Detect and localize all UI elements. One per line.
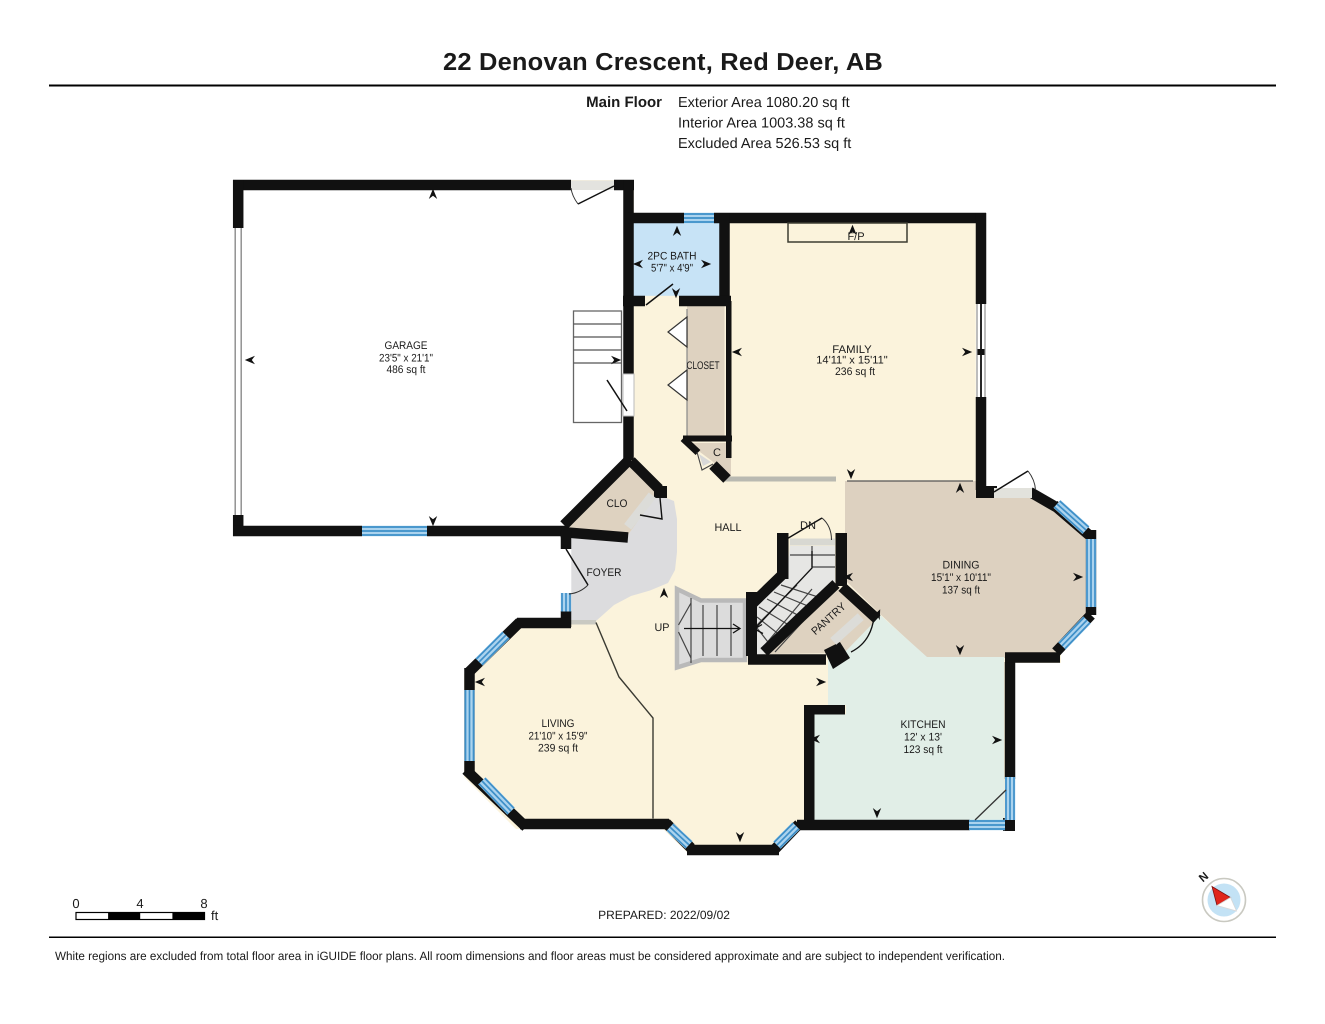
svg-text:N: N <box>1197 870 1211 885</box>
svg-text:Interior Area 1003.38 sq ft: Interior Area 1003.38 sq ft <box>678 116 845 132</box>
svg-text:UP: UP <box>655 622 670 634</box>
svg-text:12' x 13': 12' x 13' <box>904 732 942 744</box>
svg-text:CLO: CLO <box>607 498 628 510</box>
svg-text:21'10" x 15'9": 21'10" x 15'9" <box>529 731 588 743</box>
svg-text:486 sq ft: 486 sq ft <box>387 364 426 376</box>
svg-text:FOYER: FOYER <box>587 567 622 579</box>
svg-text:PREPARED: 2022/09/02: PREPARED: 2022/09/02 <box>598 908 730 922</box>
svg-text:White regions are excluded fro: White regions are excluded from total fl… <box>55 949 1005 963</box>
svg-text:LIVING: LIVING <box>542 718 575 730</box>
svg-text:HALL: HALL <box>715 522 742 534</box>
svg-text:14'11" x 15'11": 14'11" x 15'11" <box>816 355 888 367</box>
svg-text:0: 0 <box>72 896 79 911</box>
svg-text:DN: DN <box>800 520 816 532</box>
svg-text:236 sq ft: 236 sq ft <box>835 366 875 378</box>
svg-text:137 sq ft: 137 sq ft <box>942 585 980 597</box>
svg-text:DINING: DINING <box>943 560 980 572</box>
svg-text:Exterior Area 1080.20 sq ft: Exterior Area 1080.20 sq ft <box>678 95 850 111</box>
svg-text:8: 8 <box>200 896 207 911</box>
svg-text:239 sq ft: 239 sq ft <box>538 743 578 755</box>
svg-text:4: 4 <box>136 896 143 911</box>
svg-text:CLOSET: CLOSET <box>687 360 720 372</box>
svg-text:123 sq ft: 123 sq ft <box>904 744 943 756</box>
svg-text:5'7" x 4'9": 5'7" x 4'9" <box>651 263 693 275</box>
svg-text:2PC BATH: 2PC BATH <box>648 251 697 263</box>
svg-text:ft: ft <box>211 908 219 923</box>
svg-text:22 Denovan Crescent, Red Deer,: 22 Denovan Crescent, Red Deer, AB <box>443 49 883 76</box>
svg-text:C: C <box>713 447 721 459</box>
svg-text:Main Floor: Main Floor <box>586 94 662 111</box>
svg-text:GARAGE: GARAGE <box>385 340 428 352</box>
svg-text:Excluded Area 526.53 sq ft: Excluded Area 526.53 sq ft <box>678 136 851 152</box>
svg-text:KITCHEN: KITCHEN <box>901 719 946 731</box>
svg-text:23'5" x 21'1": 23'5" x 21'1" <box>379 353 433 365</box>
svg-text:F/P: F/P <box>847 231 864 243</box>
svg-text:15'1" x 10'11": 15'1" x 10'11" <box>931 572 991 584</box>
